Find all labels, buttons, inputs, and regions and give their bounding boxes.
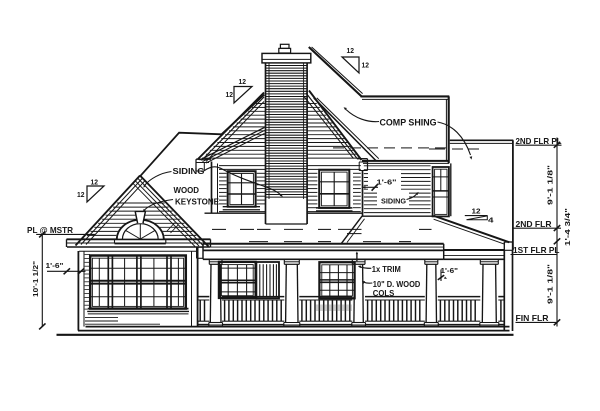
svg-text:12: 12 bbox=[226, 90, 234, 99]
svg-text:COLS: COLS bbox=[373, 289, 395, 298]
svg-text:PL @ MSTR: PL @ MSTR bbox=[27, 225, 73, 235]
svg-text:12: 12 bbox=[77, 190, 85, 199]
svg-text:9'-1 1/8": 9'-1 1/8" bbox=[545, 164, 554, 205]
svg-text:SIDING: SIDING bbox=[173, 167, 205, 176]
svg-text:10'-1 1/2": 10'-1 1/2" bbox=[31, 261, 40, 297]
svg-text:12: 12 bbox=[347, 46, 355, 55]
svg-text:1'-4 3/4": 1'-4 3/4" bbox=[563, 207, 572, 246]
svg-text:10" D. WOOD: 10" D. WOOD bbox=[373, 280, 421, 289]
svg-text:FIN FLR: FIN FLR bbox=[516, 314, 549, 323]
svg-text:12: 12 bbox=[362, 60, 370, 69]
svg-text:12: 12 bbox=[239, 77, 247, 86]
svg-text:9'-1 1/8": 9'-1 1/8" bbox=[545, 263, 554, 304]
svg-text:1'-6": 1'-6" bbox=[377, 178, 397, 187]
svg-text:1'-6": 1'-6" bbox=[441, 266, 459, 275]
svg-text:2ND FLR PL: 2ND FLR PL bbox=[516, 137, 562, 146]
svg-text:SIDING: SIDING bbox=[381, 197, 406, 206]
svg-text:COMP SHING: COMP SHING bbox=[380, 118, 437, 128]
svg-text:12: 12 bbox=[91, 177, 99, 186]
svg-text:12: 12 bbox=[472, 207, 481, 216]
svg-text:1'-6": 1'-6" bbox=[46, 261, 64, 270]
svg-text:1x TRIM: 1x TRIM bbox=[372, 265, 401, 274]
svg-text:KEYSTONE: KEYSTONE bbox=[175, 198, 220, 207]
svg-text:WOOD: WOOD bbox=[174, 186, 200, 195]
svg-text:1ST FLR PL: 1ST FLR PL bbox=[513, 246, 560, 255]
